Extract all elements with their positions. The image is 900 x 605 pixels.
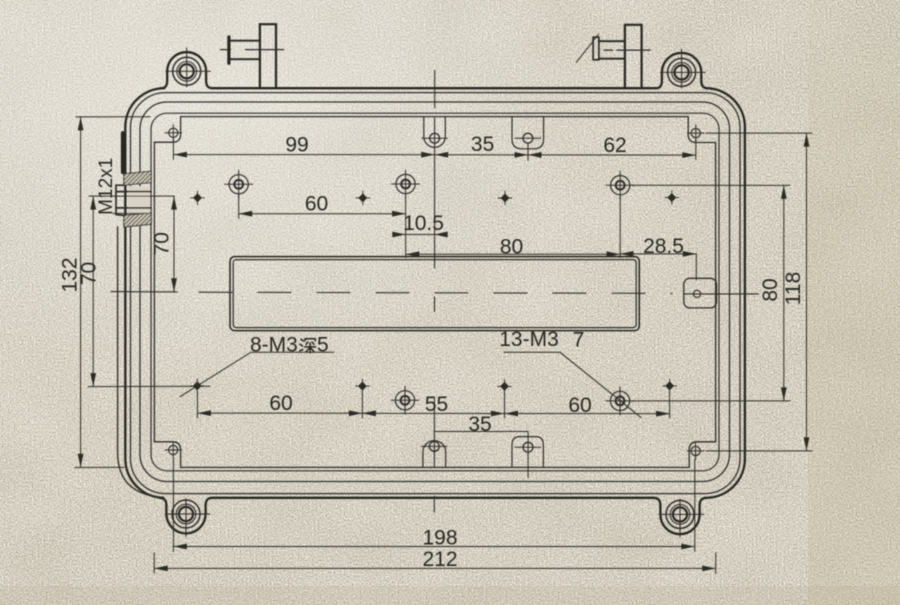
svg-text:M12x1: M12x1 <box>96 158 117 215</box>
svg-text:80: 80 <box>759 278 782 301</box>
svg-text:13-M3: 13-M3 <box>499 328 559 351</box>
svg-text:80: 80 <box>500 235 523 258</box>
svg-text:10.5: 10.5 <box>403 212 444 235</box>
svg-text:70: 70 <box>151 232 174 255</box>
svg-text:55: 55 <box>425 393 448 416</box>
svg-text:28.5: 28.5 <box>643 235 684 258</box>
svg-text:60: 60 <box>305 193 328 216</box>
svg-text:35: 35 <box>471 133 494 156</box>
svg-text:60: 60 <box>269 392 292 415</box>
svg-text:62: 62 <box>603 134 626 157</box>
svg-text:198: 198 <box>422 526 457 549</box>
svg-text:5: 5 <box>317 334 329 357</box>
svg-text:60: 60 <box>568 394 591 417</box>
svg-text:118: 118 <box>782 272 805 305</box>
svg-text:35: 35 <box>468 413 491 436</box>
svg-text:70: 70 <box>78 262 101 285</box>
svg-text:99: 99 <box>285 134 308 157</box>
svg-text:7: 7 <box>573 329 585 352</box>
svg-text:8-M3: 8-M3 <box>250 334 298 357</box>
svg-text:212: 212 <box>422 548 457 571</box>
